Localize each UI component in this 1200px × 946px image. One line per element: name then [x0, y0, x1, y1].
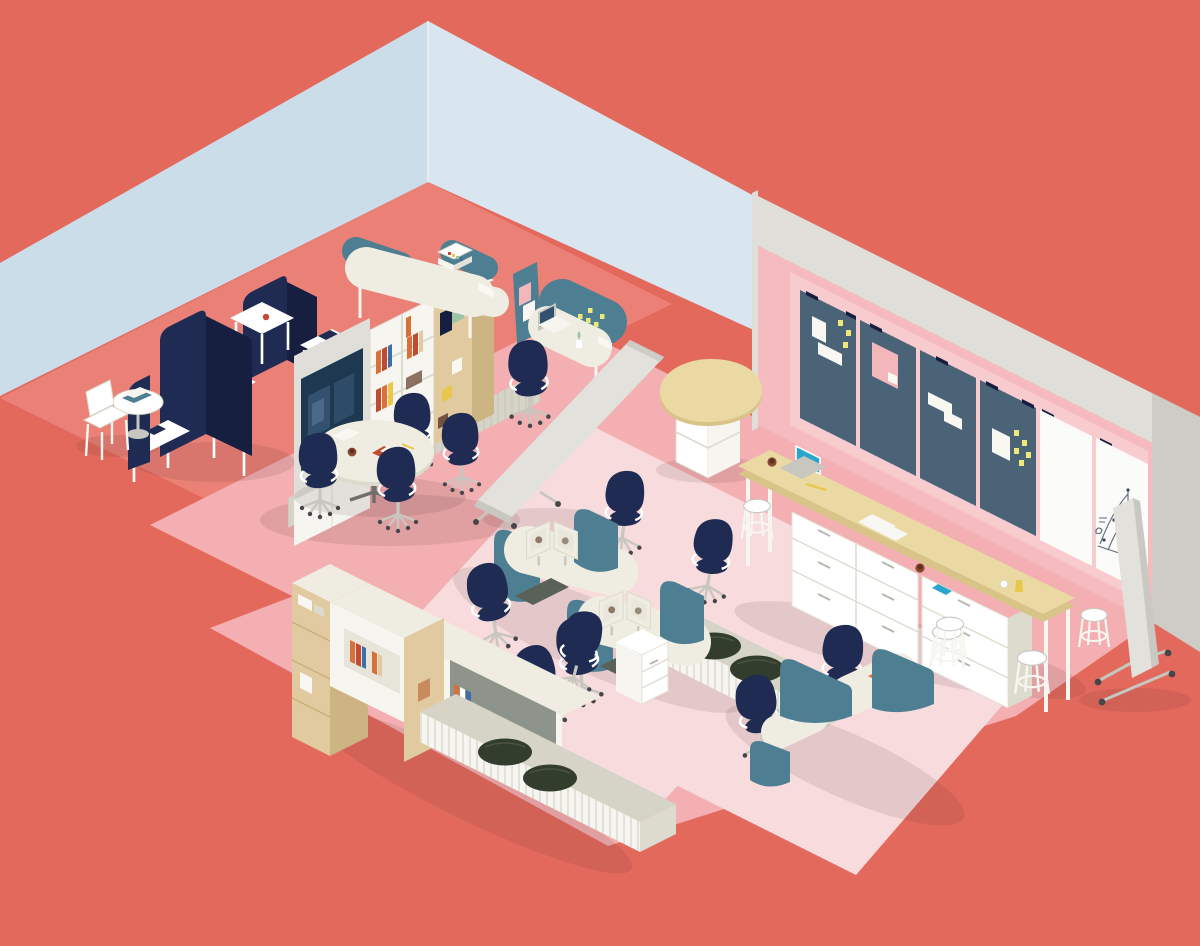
bottle [1015, 580, 1023, 592]
isometric-office-scene [0, 0, 1200, 946]
office-illustration [0, 0, 1200, 946]
pouf-3 [478, 739, 532, 766]
whiteboard-1 [1040, 410, 1092, 566]
pedestal-cabinet [616, 629, 668, 704]
display-wall-right-edge [1152, 393, 1200, 652]
apple [263, 314, 269, 320]
pouf-4 [523, 765, 577, 792]
